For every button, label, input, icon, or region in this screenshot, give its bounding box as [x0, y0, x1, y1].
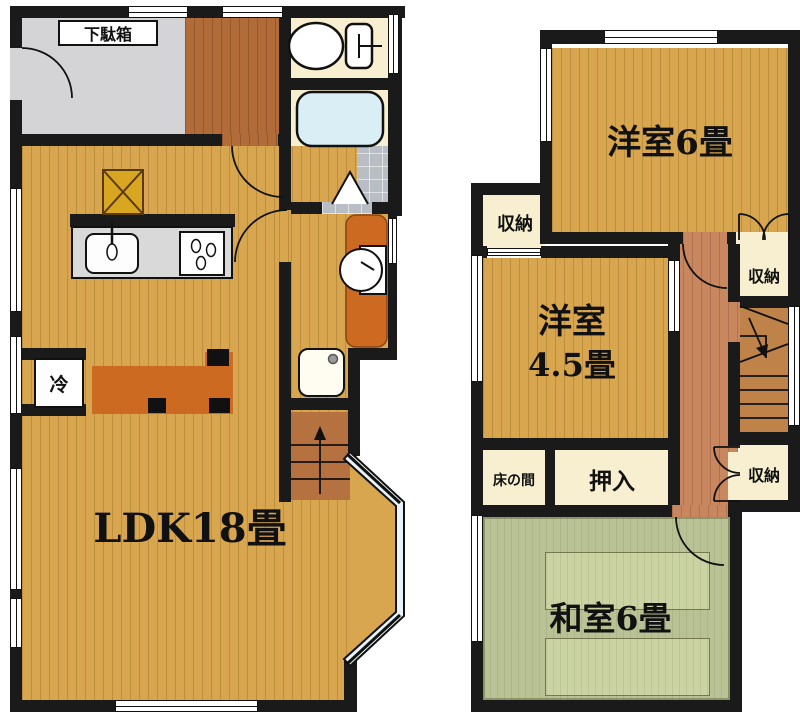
stove-icon: [180, 232, 224, 275]
closet-label: 収納: [740, 262, 788, 288]
room6-label: 洋室6畳: [580, 116, 760, 162]
vanity-sink-icon: [340, 215, 387, 347]
washitsu-label: 和室6畳: [528, 596, 693, 636]
pillar-icon: [103, 170, 143, 214]
closet-label: 収納: [486, 209, 544, 237]
stairs-up-icon: [291, 426, 350, 494]
bathtub-icon: [297, 92, 383, 146]
oshiire-label: 押入: [556, 462, 668, 496]
bay-window-icon: [344, 452, 404, 666]
double-door-closet-icon: [714, 447, 740, 501]
room45-label-line2: 4.5畳: [512, 342, 632, 384]
stairs-down-icon: [740, 306, 788, 418]
washing-machine-pan-icon: [299, 349, 344, 396]
room-door-icon: [676, 244, 727, 565]
closet-label: 収納: [740, 461, 788, 487]
double-door-closet-icon: [739, 214, 789, 240]
tokonoma-label: 床の間: [481, 466, 547, 494]
ldk-room-label: LDK18畳: [70, 498, 310, 552]
floor-plan: 下駄箱 冷 LDK18畳: [0, 0, 800, 719]
toilet-icon: [289, 23, 382, 69]
room45-label-line1: 洋室: [522, 296, 622, 340]
bath-folding-door-icon: [332, 172, 368, 204]
